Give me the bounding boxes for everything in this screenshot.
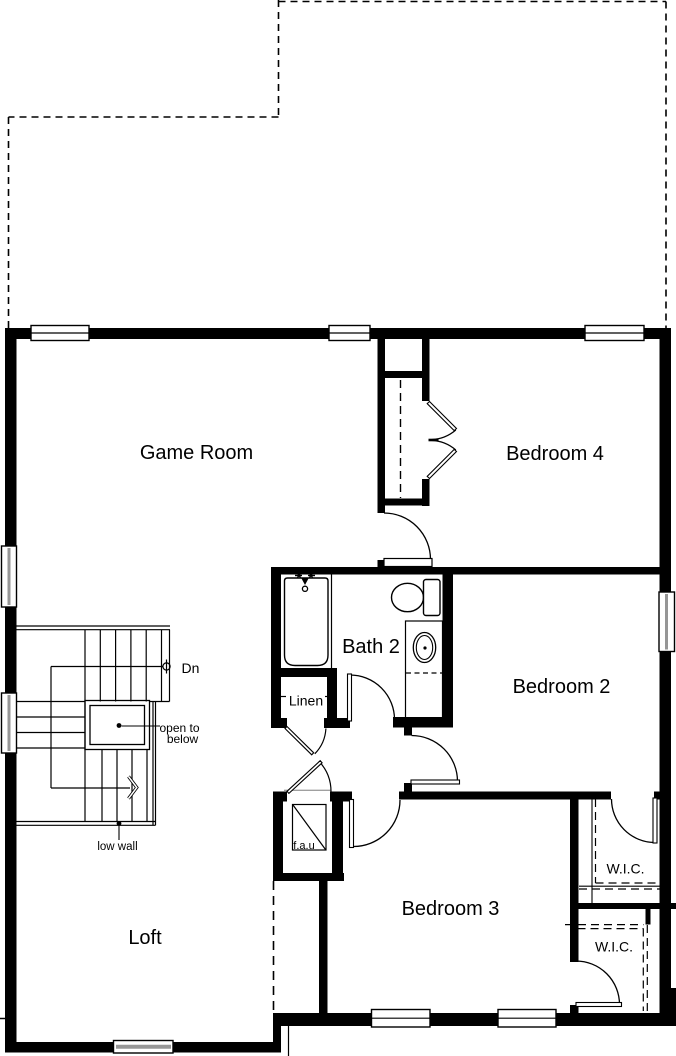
svg-text:Linen: Linen bbox=[289, 693, 323, 709]
svg-text:Bedroom 4: Bedroom 4 bbox=[506, 443, 604, 465]
svg-text:Loft: Loft bbox=[128, 927, 162, 949]
svg-text:W.I.C.: W.I.C. bbox=[595, 939, 633, 955]
svg-text:below: below bbox=[167, 732, 199, 746]
svg-text:Dn: Dn bbox=[182, 660, 200, 676]
svg-text:Bedroom 3: Bedroom 3 bbox=[402, 898, 500, 920]
svg-text:Bedroom 2: Bedroom 2 bbox=[513, 676, 611, 698]
svg-text:low wall: low wall bbox=[97, 841, 137, 853]
svg-text:W.I.C.: W.I.C. bbox=[606, 860, 644, 876]
svg-text:Bath 2: Bath 2 bbox=[342, 636, 400, 658]
svg-text:Game Room: Game Room bbox=[140, 442, 253, 464]
